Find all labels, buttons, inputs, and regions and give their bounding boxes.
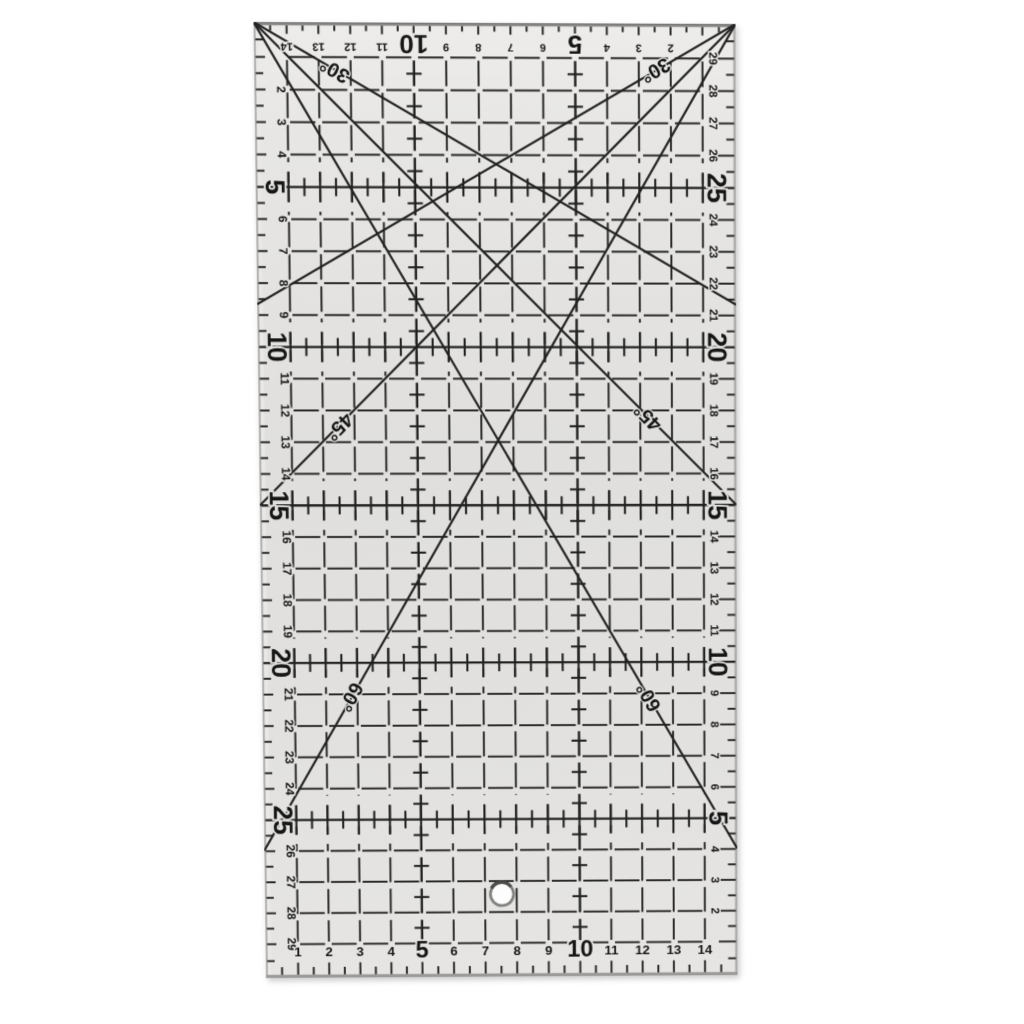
svg-text:17: 17 bbox=[280, 562, 294, 575]
svg-text:11: 11 bbox=[278, 372, 292, 385]
svg-text:15: 15 bbox=[264, 491, 295, 521]
svg-text:13: 13 bbox=[312, 40, 324, 52]
svg-text:12: 12 bbox=[635, 943, 650, 957]
svg-text:2: 2 bbox=[325, 945, 333, 959]
svg-text:3: 3 bbox=[708, 877, 721, 884]
svg-text:24: 24 bbox=[707, 213, 720, 226]
svg-text:6: 6 bbox=[276, 216, 290, 223]
svg-text:19: 19 bbox=[707, 372, 720, 385]
svg-text:3: 3 bbox=[356, 945, 364, 959]
svg-text:28: 28 bbox=[706, 85, 719, 98]
svg-text:21: 21 bbox=[282, 688, 296, 701]
svg-text:9: 9 bbox=[708, 690, 721, 697]
svg-text:5: 5 bbox=[704, 811, 734, 826]
svg-text:8: 8 bbox=[475, 41, 481, 53]
svg-text:18: 18 bbox=[707, 404, 720, 417]
svg-text:3: 3 bbox=[275, 119, 289, 126]
svg-text:15: 15 bbox=[703, 490, 733, 520]
svg-text:7: 7 bbox=[482, 944, 490, 958]
svg-text:10: 10 bbox=[399, 29, 428, 59]
svg-text:27: 27 bbox=[284, 876, 298, 889]
svg-text:6: 6 bbox=[540, 41, 546, 53]
svg-text:10: 10 bbox=[262, 332, 293, 362]
svg-text:26: 26 bbox=[284, 845, 298, 858]
svg-text:7: 7 bbox=[276, 248, 290, 255]
svg-text:29: 29 bbox=[706, 52, 719, 65]
svg-text:4: 4 bbox=[387, 945, 395, 959]
svg-text:5: 5 bbox=[568, 30, 583, 60]
svg-text:13: 13 bbox=[279, 436, 293, 450]
svg-text:9: 9 bbox=[545, 944, 553, 958]
svg-text:17: 17 bbox=[707, 436, 720, 449]
svg-text:4: 4 bbox=[603, 41, 610, 53]
svg-text:24: 24 bbox=[283, 782, 297, 795]
svg-text:22: 22 bbox=[282, 719, 296, 732]
svg-text:2: 2 bbox=[709, 908, 722, 915]
svg-text:16: 16 bbox=[280, 531, 294, 544]
svg-text:8: 8 bbox=[708, 721, 721, 728]
svg-text:13: 13 bbox=[708, 562, 721, 575]
svg-text:4: 4 bbox=[708, 846, 721, 853]
svg-text:8: 8 bbox=[277, 280, 291, 287]
svg-text:11: 11 bbox=[604, 943, 618, 957]
svg-text:26: 26 bbox=[706, 149, 719, 162]
svg-text:27: 27 bbox=[706, 117, 719, 130]
svg-text:2: 2 bbox=[274, 86, 288, 93]
svg-text:13: 13 bbox=[666, 943, 681, 957]
svg-text:4: 4 bbox=[275, 151, 289, 158]
svg-text:11: 11 bbox=[708, 624, 721, 636]
svg-text:22: 22 bbox=[707, 277, 720, 290]
svg-text:1: 1 bbox=[294, 945, 302, 959]
svg-text:14: 14 bbox=[280, 40, 293, 52]
svg-text:23: 23 bbox=[707, 245, 720, 258]
svg-text:3: 3 bbox=[636, 41, 642, 53]
svg-text:12: 12 bbox=[708, 593, 721, 606]
svg-text:20: 20 bbox=[702, 332, 732, 362]
svg-text:2: 2 bbox=[668, 42, 674, 54]
svg-text:7: 7 bbox=[708, 753, 721, 759]
svg-text:10: 10 bbox=[703, 647, 733, 677]
svg-text:11: 11 bbox=[376, 40, 388, 52]
svg-text:10: 10 bbox=[567, 937, 593, 963]
svg-text:14: 14 bbox=[279, 467, 293, 481]
svg-text:7: 7 bbox=[507, 41, 513, 53]
svg-text:8: 8 bbox=[513, 944, 521, 958]
svg-text:6: 6 bbox=[708, 784, 721, 791]
svg-text:9: 9 bbox=[443, 41, 449, 53]
svg-text:18: 18 bbox=[281, 594, 295, 607]
svg-text:19: 19 bbox=[281, 625, 295, 638]
svg-text:5: 5 bbox=[416, 938, 429, 964]
svg-text:21: 21 bbox=[707, 309, 720, 322]
svg-text:12: 12 bbox=[344, 40, 356, 52]
svg-text:16: 16 bbox=[707, 467, 720, 480]
svg-text:14: 14 bbox=[708, 530, 721, 543]
svg-text:20: 20 bbox=[266, 648, 297, 678]
svg-text:28: 28 bbox=[284, 907, 298, 920]
svg-text:14: 14 bbox=[698, 943, 713, 957]
svg-text:6: 6 bbox=[450, 944, 458, 958]
svg-text:12: 12 bbox=[278, 404, 292, 418]
svg-text:5: 5 bbox=[260, 179, 291, 194]
svg-text:9: 9 bbox=[277, 312, 291, 319]
svg-text:23: 23 bbox=[282, 751, 296, 764]
svg-text:25: 25 bbox=[268, 805, 299, 835]
svg-text:25: 25 bbox=[702, 173, 732, 203]
